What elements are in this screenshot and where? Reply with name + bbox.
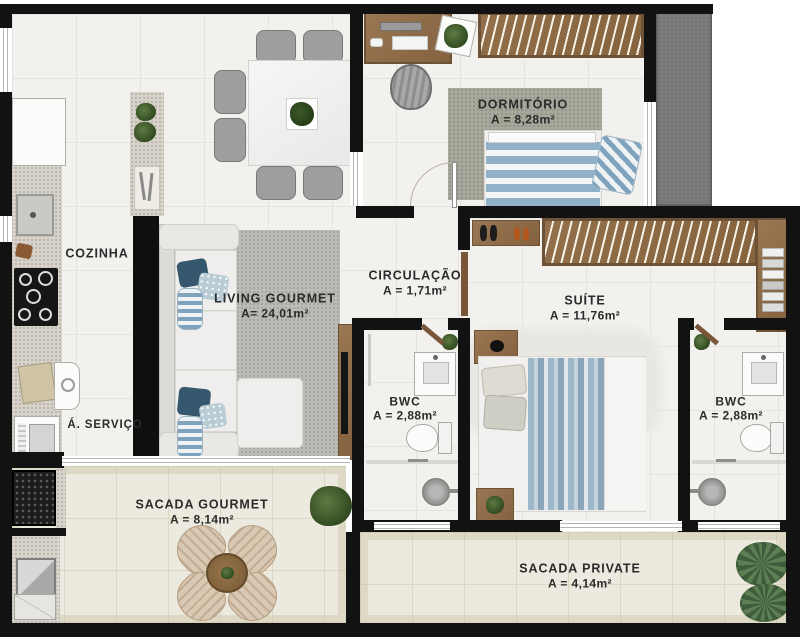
window-dorm-divider: [350, 152, 363, 206]
room-area: A = 8,14m²: [136, 512, 269, 526]
faucet: [761, 355, 766, 360]
bwc1-glass-handle: [408, 459, 428, 462]
wall-bwc1-right: [458, 318, 470, 532]
room-name: BWC: [699, 395, 763, 409]
wall-left: [0, 242, 12, 623]
table-plant: [221, 567, 234, 579]
room-name: Á. SERVIÇO: [67, 419, 142, 433]
shoe: [523, 227, 529, 241]
wall-bwc1-top: [352, 318, 422, 330]
washing-machine: [54, 362, 80, 410]
room-name: LIVING GOURMET: [214, 291, 336, 306]
throw-pillow-striped: [177, 288, 203, 330]
door-suite: [461, 252, 468, 316]
folded-clothes: [762, 292, 784, 301]
dining-chair: [303, 166, 343, 200]
throw-pillow-striped: [177, 416, 203, 458]
wall-bwc2-top: [678, 318, 694, 330]
room-area: A = 1,71m²: [368, 283, 461, 297]
bwc1-toilet-tank: [438, 422, 452, 454]
suite-pillow: [483, 395, 527, 432]
wall-left: [0, 4, 12, 28]
folded-clothes: [762, 270, 784, 279]
building-corridor: [656, 10, 712, 206]
wall-circ-suite: [458, 218, 470, 250]
label-sacada-gourmet: SACADA GOURMET A = 8,14m²: [136, 497, 269, 526]
label-sacada-private: SACADA PRIVATE A = 4,14m²: [519, 561, 640, 590]
window-kitchen-2: [0, 216, 12, 242]
bwc1-vanity: [414, 352, 456, 396]
burner: [39, 308, 52, 321]
wall-bwc2-left: [678, 318, 690, 532]
wall-bwc2-top: [724, 318, 788, 330]
wall-grill-niche: [6, 528, 66, 536]
utensil: [139, 172, 146, 200]
folded-clothes: [762, 248, 784, 257]
label-living: LIVING GOURMET A= 24,01m²: [214, 291, 336, 320]
wall-kitchen-dorm: [350, 4, 363, 152]
room-area: A= 24,01m²: [214, 306, 336, 320]
room-name: SACADA PRIVATE: [519, 561, 640, 576]
desk-chair: [390, 64, 432, 110]
dining-chair: [214, 118, 246, 162]
folded-clothes: [762, 281, 784, 290]
utensil-tray: [134, 166, 160, 210]
label-dormitorio: DORMITÓRIO A = 8,28m²: [478, 97, 568, 126]
bwc2-sink: [751, 362, 777, 384]
sofa-chaise: [237, 378, 303, 448]
decor-bowl: [490, 340, 504, 352]
sliding-door-living-sacada: [62, 456, 350, 466]
room-name: SUÍTE: [550, 293, 620, 308]
bwc2-toilet-tank: [770, 422, 784, 454]
wall-dorm-bottom: [356, 206, 414, 218]
laptop: [380, 22, 422, 31]
room-area: A = 2,88m²: [699, 409, 763, 423]
wardrobe-suite: [542, 218, 758, 266]
cutting-board: [18, 362, 57, 404]
room-name: COZINHA: [65, 247, 128, 262]
folded-clothes: [762, 303, 784, 312]
room-area: A = 4,14m²: [519, 576, 640, 590]
suite-duvet: [604, 358, 646, 510]
label-bwc1: BWC A = 2,88m²: [373, 395, 437, 424]
sofa-armrest: [159, 224, 239, 250]
room-area: A = 8,28m²: [478, 112, 568, 126]
bwc1-shower-head: [422, 478, 450, 506]
centerpiece-plant: [290, 102, 314, 126]
room-name: SACADA GOURMET: [136, 497, 269, 512]
shoe: [480, 225, 487, 241]
dining-chair: [256, 166, 296, 200]
window-bwc1: [374, 522, 450, 530]
kitchen-jar: [15, 242, 34, 259]
bwc2-shower-arm: [690, 489, 701, 493]
dining-chair: [256, 30, 296, 64]
burner: [26, 289, 41, 304]
wall-bwc1-top: [448, 318, 470, 330]
room-name: CIRCULAÇÃO: [368, 268, 461, 283]
bwc2-toilet-bowl: [740, 424, 772, 452]
wall-dorm-corridor: [644, 4, 656, 102]
burner: [18, 308, 31, 321]
wall-right: [786, 206, 800, 637]
wall-suite-top: [458, 206, 788, 218]
floor-plan: COZINHA Á. SERVIÇO DORMITÓRIO A = 8,28m²…: [0, 0, 800, 637]
window-kitchen: [0, 28, 12, 92]
burner: [19, 273, 32, 286]
mouse: [370, 38, 383, 47]
washer-door: [61, 378, 75, 392]
room-area: A = 11,76m²: [550, 308, 620, 322]
bwc2-shower-head: [698, 478, 726, 506]
wall-bottom: [0, 623, 800, 637]
shoe: [514, 227, 520, 241]
suite-blanket: [528, 358, 604, 510]
wall-servico-sacada: [6, 452, 64, 468]
access-hatch: [14, 594, 56, 620]
folded-clothes: [762, 259, 784, 268]
room-area: A = 2,88m²: [373, 409, 437, 423]
room-name: BWC: [373, 395, 437, 409]
bwc1-glass-shelf: [368, 334, 371, 386]
wall-left: [0, 92, 12, 216]
bwc1-sink: [423, 362, 449, 384]
utensil: [148, 173, 154, 201]
grill-counter: [56, 468, 66, 528]
burner: [38, 271, 53, 286]
shoe: [490, 225, 497, 241]
fridge: [12, 98, 66, 166]
tv: [341, 352, 348, 434]
dining-chair: [303, 30, 343, 64]
bwc1-toilet-bowl: [406, 424, 438, 452]
room-name: DORMITÓRIO: [478, 97, 568, 112]
dining-chair: [214, 70, 246, 114]
bed-pillow: [488, 132, 596, 143]
barbecue-grill: [12, 470, 56, 526]
wall-sacada-divider: [346, 532, 360, 623]
label-circulacao: CIRCULAÇÃO A = 1,71m²: [368, 268, 461, 297]
sliding-door-suite-sacada: [560, 521, 682, 531]
door-dormitorio: [452, 162, 457, 208]
window-dorm-corridor: [644, 102, 656, 206]
bed-blanket: [486, 142, 600, 206]
wall-bwc1-left: [352, 318, 364, 532]
faucet: [30, 212, 36, 218]
keyboard: [392, 36, 428, 50]
suite-pillow: [481, 364, 528, 398]
sofa-back: [159, 224, 175, 462]
wall-suite-bottom: [470, 520, 562, 532]
label-suite: SUÍTE A = 11,76m²: [550, 293, 620, 322]
label-servico: Á. SERVIÇO: [67, 419, 142, 433]
cooktop: [14, 268, 58, 326]
bwc2-shower-glass: [692, 460, 786, 464]
dining-table: [248, 60, 354, 166]
window-bwc2: [698, 522, 780, 530]
wardrobe-dormitorio: [478, 12, 644, 58]
label-cozinha: COZINHA: [65, 247, 128, 262]
bwc2-glass-handle: [716, 459, 736, 462]
label-bwc2: BWC A = 2,88m²: [699, 395, 763, 424]
bwc2-vanity: [742, 352, 784, 396]
faucet: [433, 355, 438, 360]
